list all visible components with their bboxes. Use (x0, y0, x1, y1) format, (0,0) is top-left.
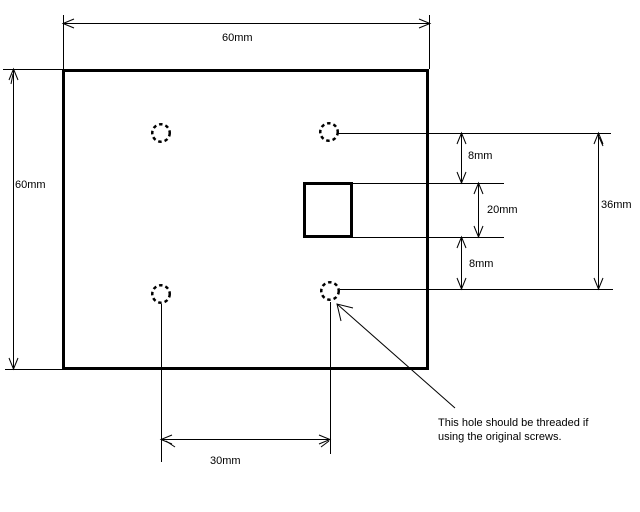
note-line-2: using the original screws. (438, 430, 588, 444)
hole-bottom-left (152, 285, 170, 303)
dim-label-gap-bottom: 8mm (469, 258, 493, 270)
plate-outline (64, 71, 428, 369)
arrowhead-sketch-stroke (166, 441, 175, 447)
square-cutout (305, 184, 352, 237)
dim-label-gap-top: 8mm (468, 150, 492, 162)
note-line-1: This hole should be threaded if (438, 416, 588, 430)
dim-label-slot-height: 20mm (487, 204, 518, 216)
dim-label-left-height: 60mm (15, 179, 46, 191)
dim-span-horizontal (161, 302, 331, 462)
hole-bottom-right (321, 282, 339, 300)
technical-drawing-canvas: 60mm 60mm 8mm 20mm 8mm 36mm 30mm This ho… (0, 0, 640, 512)
hole-top-left (152, 124, 170, 142)
dim-label-top-width: 60mm (222, 32, 253, 44)
threaded-hole-note: This hole should be threaded if using th… (438, 416, 588, 444)
hole-top-right (320, 123, 338, 141)
dim-label-span-horizontal: 30mm (210, 455, 241, 467)
note-leader-line (337, 304, 455, 408)
dim-left-height (3, 69, 62, 370)
dim-label-span-vertical: 36mm (601, 199, 632, 211)
